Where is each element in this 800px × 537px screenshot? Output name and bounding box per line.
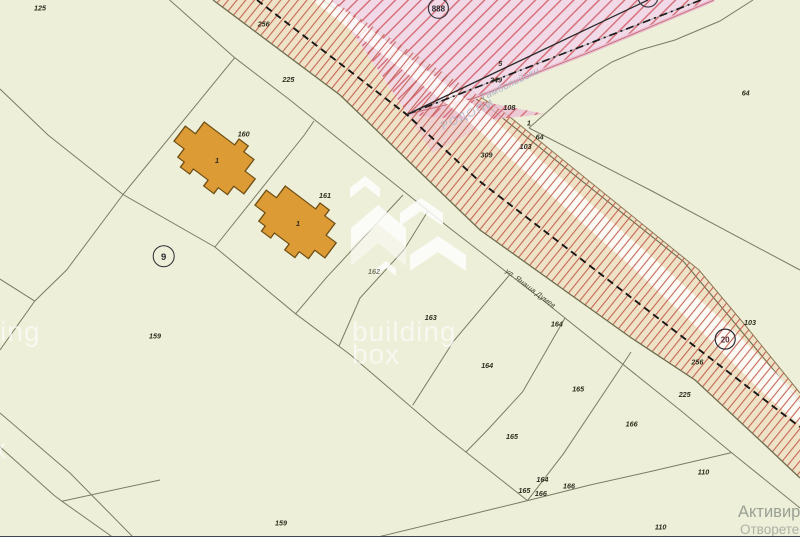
- svg-text:166: 166: [563, 482, 576, 491]
- svg-text:1: 1: [527, 118, 531, 127]
- svg-text:110: 110: [655, 523, 666, 532]
- svg-text:Отворете н: Отворете н: [740, 522, 800, 537]
- svg-text:125: 125: [34, 4, 47, 13]
- svg-text:159: 159: [275, 518, 287, 527]
- svg-text:108: 108: [503, 103, 515, 112]
- svg-text:x: x: [0, 433, 6, 464]
- svg-text:1: 1: [215, 156, 219, 165]
- svg-text:309: 309: [481, 150, 493, 159]
- svg-text:164: 164: [536, 475, 548, 484]
- svg-text:162: 162: [368, 267, 380, 276]
- svg-text:103: 103: [520, 142, 532, 151]
- svg-text:256: 256: [690, 357, 704, 366]
- svg-text:160: 160: [238, 129, 250, 138]
- svg-text:64: 64: [742, 89, 750, 98]
- svg-text:1: 1: [296, 219, 300, 228]
- svg-text:888: 888: [432, 4, 446, 13]
- svg-text:166: 166: [535, 489, 548, 498]
- svg-text:225: 225: [281, 75, 295, 84]
- svg-text:256: 256: [257, 20, 271, 29]
- svg-text:9: 9: [161, 252, 166, 263]
- svg-text:161: 161: [319, 191, 331, 200]
- svg-text:164: 164: [481, 361, 493, 370]
- svg-text:165: 165: [506, 432, 519, 441]
- svg-text:225: 225: [678, 390, 692, 399]
- svg-text:20: 20: [721, 336, 730, 345]
- svg-text:103: 103: [744, 318, 756, 327]
- svg-text:163: 163: [425, 313, 437, 322]
- svg-text:249: 249: [489, 76, 502, 85]
- svg-text:165: 165: [518, 486, 531, 495]
- svg-text:165: 165: [572, 385, 585, 394]
- svg-text:159: 159: [149, 332, 161, 341]
- svg-text:building: building: [0, 316, 41, 347]
- svg-text:box: box: [352, 339, 400, 370]
- svg-text:64: 64: [536, 132, 544, 141]
- svg-text:Активир: Активир: [738, 503, 800, 521]
- svg-text:164: 164: [551, 319, 563, 328]
- svg-text:110: 110: [698, 468, 709, 477]
- svg-text:166: 166: [626, 420, 639, 429]
